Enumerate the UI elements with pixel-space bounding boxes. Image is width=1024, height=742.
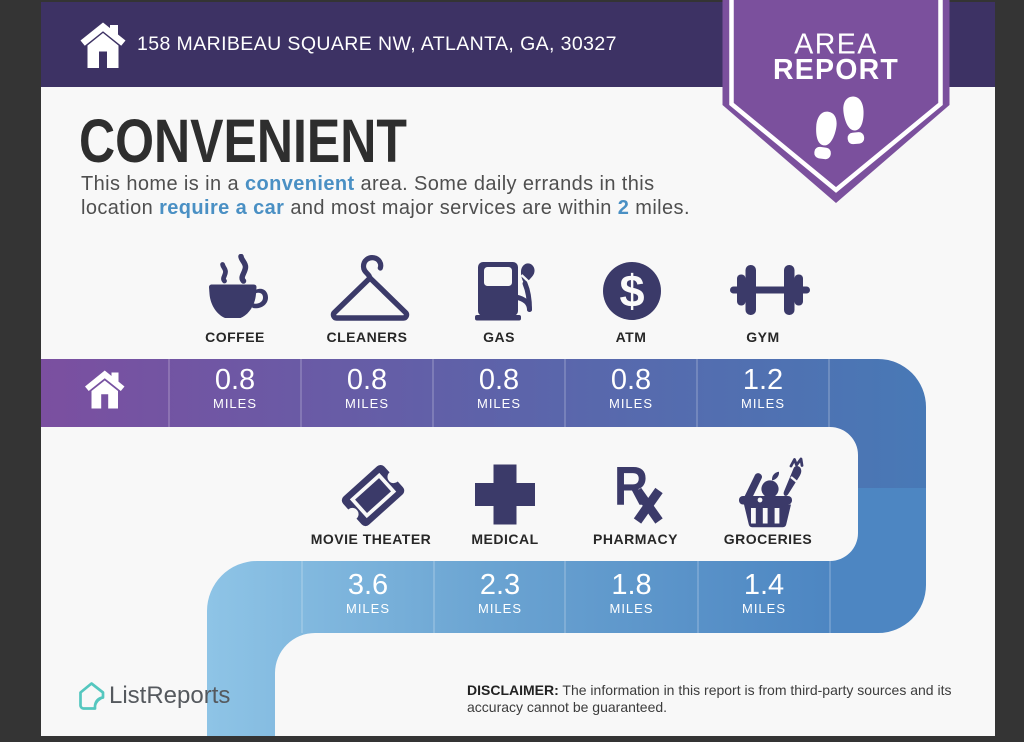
svg-text:$: $: [619, 266, 644, 317]
